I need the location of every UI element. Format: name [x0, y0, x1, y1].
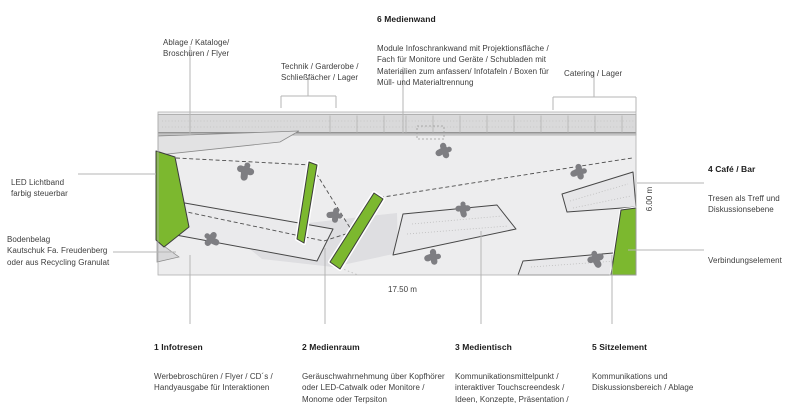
- infotresen-body: Werbebroschüren / Flyer / CD´s / Handyau…: [154, 372, 273, 393]
- medientisch-title: 3 Medientisch: [455, 342, 569, 354]
- sitzelement-body: Kommunikations und Diskussionsbereich / …: [592, 372, 693, 393]
- callout-medienwand: 6 Medienwand Module Infoschrankwand mit …: [377, 2, 549, 89]
- medienwand-band: [158, 115, 636, 136]
- callout-sitzelement: 5 Sitzelement Kommunikations und Diskuss…: [592, 330, 693, 394]
- callout-verbindung: Verbindungselement: [708, 243, 782, 266]
- callout-medientisch: 3 Medientisch Kommunikationsmittelpunkt …: [455, 330, 569, 405]
- medienwand-title: 6 Medienwand: [377, 14, 549, 26]
- medientisch-body: Kommunikationsmittelpunkt / interaktiver…: [455, 372, 569, 405]
- medienraum-title: 2 Medienraum: [302, 342, 445, 354]
- ablage-body: Ablage / Kataloge/ Broschüren / Flyer: [163, 38, 229, 59]
- callout-catering: Catering / Lager: [564, 56, 622, 79]
- sitzelement-title: 5 Sitzelement: [592, 342, 693, 354]
- callout-medienraum: 2 Medienraum Geräuschwahrnehmung über Ko…: [302, 330, 445, 405]
- cafe-body: Tresen als Treff und Diskussionsebene: [708, 194, 780, 215]
- medienraum-body: Geräuschwahrnehmung über Kopfhörer oder …: [302, 372, 445, 404]
- callout-ablage: Ablage / Kataloge/ Broschüren / Flyer: [163, 25, 229, 60]
- callout-cafe: 4 Café / Bar Tresen als Treff und Diskus…: [708, 152, 780, 216]
- boden-body: Bodenbelag Kautschuk Fa. Freudenberg ode…: [7, 235, 109, 267]
- led-body: LED Lichtband farbig steuerbar: [11, 178, 68, 199]
- catering-body: Catering / Lager: [564, 69, 622, 78]
- callout-technik: Technik / Garderobe / Schließfächer / La…: [281, 49, 359, 84]
- infotresen-title: 1 Infotresen: [154, 342, 273, 354]
- dimension-width-label: 17.50 m: [388, 285, 417, 294]
- medienwand-body: Module Infoschrankwand mit Projektionsfl…: [377, 44, 549, 88]
- verbindung-body: Verbindungselement: [708, 256, 782, 265]
- callout-led: LED Lichtband farbig steuerbar: [11, 165, 68, 200]
- dimension-height-label: 6.00 m: [645, 164, 657, 234]
- callout-boden: Bodenbelag Kautschuk Fa. Freudenberg ode…: [7, 222, 109, 268]
- floor-plan-diagram: Ablage / Kataloge/ Broschüren / Flyer Te…: [0, 0, 800, 405]
- callout-infotresen: 1 Infotresen Werbebroschüren / Flyer / C…: [154, 330, 273, 394]
- technik-body: Technik / Garderobe / Schließfächer / La…: [281, 62, 359, 83]
- cafe-title: 4 Café / Bar: [708, 164, 780, 176]
